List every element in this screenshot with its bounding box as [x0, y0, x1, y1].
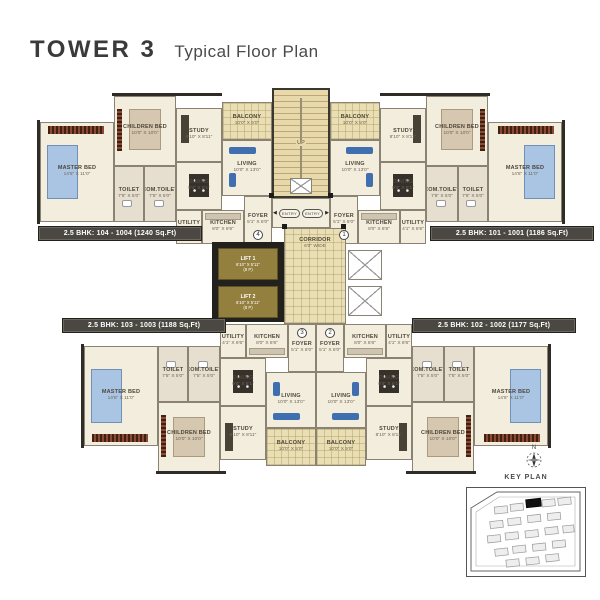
unit103-com-toilet: COM.TOILET7'5" X 5'0"	[188, 346, 220, 402]
stair-up-label: UP	[296, 140, 306, 146]
wardrobe	[117, 109, 122, 151]
unit103-toilet: TOILET7'5" X 5'0"	[158, 346, 188, 402]
unit103-foyer: FOYER5'1" X 8'0" 3	[288, 324, 316, 372]
kitchen-counter	[347, 348, 384, 355]
unit103-living: LIVING10'0" X 13'0"	[266, 372, 316, 428]
unit102-balcony: BALCONY10'0" X 5'0"	[316, 428, 366, 466]
unit102-foyer: FOYER5'1" X 8'0" 2	[316, 324, 344, 372]
unit-label-103: 2.5 BHK: 103 - 1003 (1188 Sq.Ft)	[62, 318, 226, 333]
entry-arrow-icon: ▶	[325, 211, 329, 216]
unit102-utility: UTILITY4'1" X 8'6"	[386, 324, 412, 358]
unit-number-badge: 1	[339, 230, 349, 240]
wall-segment	[548, 344, 551, 448]
entry-label: ENTRY	[279, 209, 300, 218]
unit102-study: STUDY8'10" X 8'11"	[366, 406, 412, 460]
key-plan-drawing	[467, 488, 584, 575]
unit101-living: LIVING10'0" X 13'0"	[330, 140, 380, 196]
kitchen-counter	[361, 213, 398, 220]
toilet-fixture	[154, 200, 164, 207]
corridor: CORRIDOR6'0" WIDE	[284, 228, 346, 324]
unit101-kitchen: KITCHEN8'0" X 8'6"	[358, 210, 400, 244]
staircase: UP	[272, 88, 330, 198]
unit104-living: LIVING10'0" X 13'0"	[222, 140, 272, 196]
unit101-com-toilet: COM.TOILET7'5" X 5'0"	[426, 166, 458, 222]
column	[328, 193, 333, 198]
wall-segment	[37, 120, 40, 224]
unit104-kitchen: KITCHEN8'0" X 8'6"	[202, 210, 244, 244]
wardrobe	[161, 415, 166, 457]
unit103-children-bed: CHILDREN BED10'0" X 10'0"	[158, 402, 220, 472]
sofa	[229, 147, 256, 154]
wall-segment	[112, 93, 222, 96]
highlighted-tower	[526, 498, 542, 508]
key-plan-title: KEY PLAN	[466, 474, 586, 481]
unit102-living: LIVING10'0" X 13'0"	[316, 372, 366, 428]
unit104-study: STUDY8'10" X 8'11"	[176, 108, 222, 162]
wardrobe	[48, 126, 104, 134]
wardrobe	[484, 434, 540, 442]
sofa	[366, 173, 374, 187]
kitchen-counter	[205, 213, 242, 220]
lift-1: LIFT 1 6'10" X 5'11" (8 P)	[218, 248, 278, 280]
plan-subtitle: Typical Floor Plan	[174, 42, 318, 62]
wardrobe	[92, 434, 148, 442]
toilet-fixture	[466, 200, 476, 207]
unit101-toilet: TOILET7'5" X 5'0"	[458, 166, 488, 222]
sofa	[229, 173, 237, 187]
unit-number-badge: 2	[325, 328, 335, 338]
shaft	[290, 178, 312, 194]
unit-label-102: 2.5 BHK: 102 - 1002 (1177 Sq.Ft)	[412, 318, 576, 333]
unit101-children-bed: CHILDREN BED10'0" X 10'0"	[426, 96, 488, 166]
compass-icon: N	[520, 442, 548, 472]
unit102-kitchen: KITCHEN8'0" X 8'6"	[344, 324, 386, 358]
unit102-toilet: TOILET7'5" X 5'0"	[444, 346, 474, 402]
wall-segment	[406, 471, 476, 474]
toilet-fixture	[122, 200, 132, 207]
key-plan-map	[466, 487, 586, 577]
wall-segment	[81, 344, 84, 448]
unit102-master-bed: MASTER BED14'5" X 11'0"	[474, 346, 548, 446]
wall-segment	[562, 120, 565, 224]
unit101-dining: DINING9'4" X 8'1"	[380, 162, 426, 210]
page-header: TOWER 3 Typical Floor Plan	[30, 36, 319, 64]
unit-label-104: 2.5 BHK: 104 - 1004 (1240 Sq.Ft)	[38, 226, 202, 241]
unit-number-badge: 4	[253, 230, 263, 240]
wardrobe	[480, 109, 485, 151]
floor-plan-canvas: TOWER 3 Typical Floor Plan MASTER BED14'…	[0, 0, 600, 600]
unit104-children-bed: CHILDREN BED10'0" X 10'0"	[114, 96, 176, 166]
sofa	[346, 147, 373, 154]
unit103-balcony: BALCONY10'0" X 5'0"	[266, 428, 316, 466]
unit102-com-toilet: COM.TOILET7'5" X 5'0"	[412, 346, 444, 402]
duct-shaft	[348, 286, 382, 316]
unit104-dining: DINING9'4" X 8'1"	[176, 162, 222, 210]
column	[341, 224, 346, 229]
unit103-master-bed: MASTER BED14'5" X 11'0"	[84, 346, 158, 446]
wall-segment	[156, 471, 226, 474]
unit104-foyer: FOYER5'1" X 8'0" 4	[244, 196, 272, 244]
entry-label: ENTRY	[302, 209, 323, 218]
lift-2: LIFT 2 6'10" X 5'11" (8 P)	[218, 286, 278, 318]
unit103-dining: DINING9'4" X 8'1"	[220, 358, 266, 406]
column	[269, 193, 274, 198]
unit-label-101: 2.5 BHK: 101 - 1001 (1186 Sq.Ft)	[430, 226, 594, 241]
column	[282, 224, 287, 229]
kitchen-counter	[249, 348, 286, 355]
unit102-children-bed: CHILDREN BED10'0" X 10'0"	[412, 402, 474, 472]
unit-number-badge: 3	[297, 328, 307, 338]
unit104-com-toilet: COM.TOILET7'5" X 5'0"	[144, 166, 176, 222]
unit104-master-bed: MASTER BED14'5" X 11'0"	[40, 122, 114, 222]
unit104-toilet: TOILET7'5" X 5'0"	[114, 166, 144, 222]
sofa	[332, 413, 359, 420]
wardrobe	[498, 126, 554, 134]
toilet-fixture	[436, 200, 446, 207]
duct-shaft	[348, 250, 382, 280]
unit104-balcony: BALCONY10'0" X 5'0"	[222, 102, 272, 140]
tower-title: TOWER 3	[30, 36, 156, 64]
unit101-utility: UTILITY4'1" X 8'6"	[400, 210, 426, 244]
entry-lobby: ◀ ENTRY ENTRY ▶	[272, 198, 330, 228]
unit103-kitchen: KITCHEN8'0" X 8'6"	[246, 324, 288, 358]
unit101-balcony: BALCONY10'0" X 5'0"	[330, 102, 380, 140]
unit102-dining: DINING9'4" X 8'1"	[366, 358, 412, 406]
sofa	[273, 413, 300, 420]
wall-segment	[380, 93, 490, 96]
unit103-study: STUDY8'10" X 8'11"	[220, 406, 266, 460]
wardrobe	[466, 415, 471, 457]
north-label: N	[532, 445, 536, 451]
unit101-study: STUDY8'10" X 8'11"	[380, 108, 426, 162]
entry-arrow-icon: ◀	[273, 211, 277, 216]
unit101-master-bed: MASTER BED14'5" X 11'0"	[488, 122, 562, 222]
